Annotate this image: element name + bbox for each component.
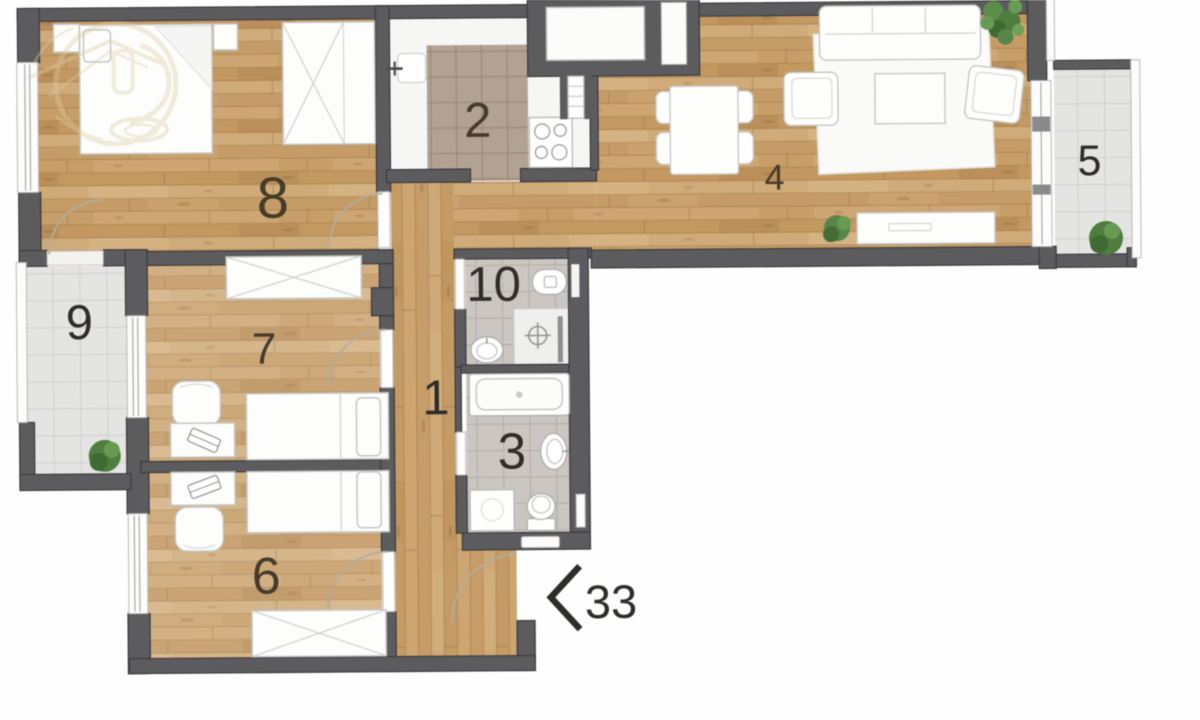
- svg-text:7: 7: [252, 325, 277, 374]
- svg-text:3: 3: [497, 423, 526, 480]
- svg-text:4: 4: [764, 157, 784, 198]
- svg-text:9: 9: [65, 296, 93, 350]
- svg-text:8: 8: [256, 165, 289, 230]
- svg-text:6: 6: [251, 548, 280, 606]
- svg-text:33: 33: [585, 575, 638, 628]
- svg-text:2: 2: [464, 94, 492, 148]
- svg-text:5: 5: [1077, 137, 1101, 185]
- svg-text:1: 1: [422, 371, 450, 425]
- svg-text:10: 10: [466, 258, 521, 312]
